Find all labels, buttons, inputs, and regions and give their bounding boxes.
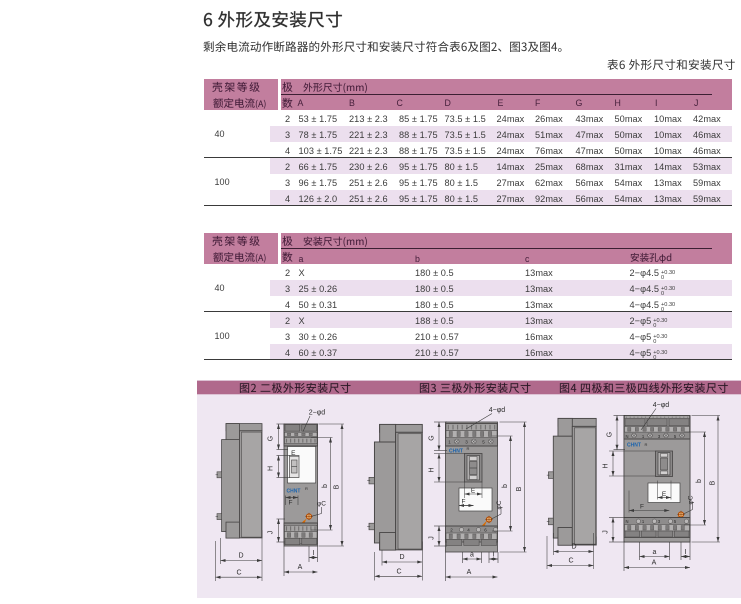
svg-text:B: B	[710, 480, 717, 485]
svg-text:R: R	[305, 486, 308, 491]
svg-text:b: b	[502, 484, 509, 488]
svg-text:G: G	[429, 435, 436, 440]
svg-text:CHNT: CHNT	[287, 489, 301, 495]
svg-text:A: A	[467, 569, 472, 576]
svg-text:E: E	[662, 491, 667, 498]
svg-text:D: D	[238, 553, 243, 560]
svg-text:G: G	[268, 436, 275, 441]
svg-text:R: R	[645, 442, 648, 447]
svg-text:C: C	[568, 558, 573, 565]
svg-text:N: N	[625, 434, 628, 439]
svg-text:R: R	[467, 446, 470, 451]
svg-text:H: H	[429, 467, 436, 472]
svg-text:b: b	[696, 479, 703, 483]
svg-text:F: F	[289, 500, 293, 507]
svg-text:a: a	[470, 552, 474, 559]
svg-text:B: B	[334, 484, 341, 489]
svg-text:A: A	[298, 564, 303, 571]
svg-text:B: B	[516, 486, 523, 491]
svg-text:J: J	[429, 536, 436, 540]
svg-text:CHNT: CHNT	[627, 443, 641, 449]
svg-text:F: F	[462, 499, 466, 506]
svg-text:b: b	[322, 484, 329, 488]
svg-text:H: H	[603, 463, 610, 468]
svg-text:I: I	[313, 550, 315, 557]
svg-text:N: N	[625, 519, 628, 524]
svg-text:D: D	[399, 554, 404, 561]
svg-text:J: J	[603, 530, 610, 534]
svg-text:J: J	[268, 531, 275, 535]
svg-text:4−φd: 4−φd	[653, 402, 670, 409]
svg-text:H: H	[268, 466, 275, 471]
svg-text:E: E	[291, 450, 296, 457]
svg-text:φC: φC	[688, 495, 695, 504]
svg-text:4−φd: 4−φd	[489, 407, 506, 414]
svg-text:I: I	[493, 552, 495, 559]
svg-text:C: C	[396, 568, 401, 575]
svg-text:φC: φC	[317, 501, 326, 508]
svg-text:A: A	[652, 560, 657, 567]
svg-text:E: E	[471, 488, 476, 495]
svg-text:2−φd: 2−φd	[309, 410, 326, 417]
svg-text:I: I	[685, 549, 687, 556]
svg-text:G: G	[607, 432, 614, 437]
svg-text:F: F	[640, 504, 644, 511]
svg-text:D: D	[571, 544, 576, 551]
svg-text:C: C	[236, 570, 241, 577]
svg-text:a: a	[653, 549, 657, 556]
svg-text:φC: φC	[496, 500, 503, 509]
